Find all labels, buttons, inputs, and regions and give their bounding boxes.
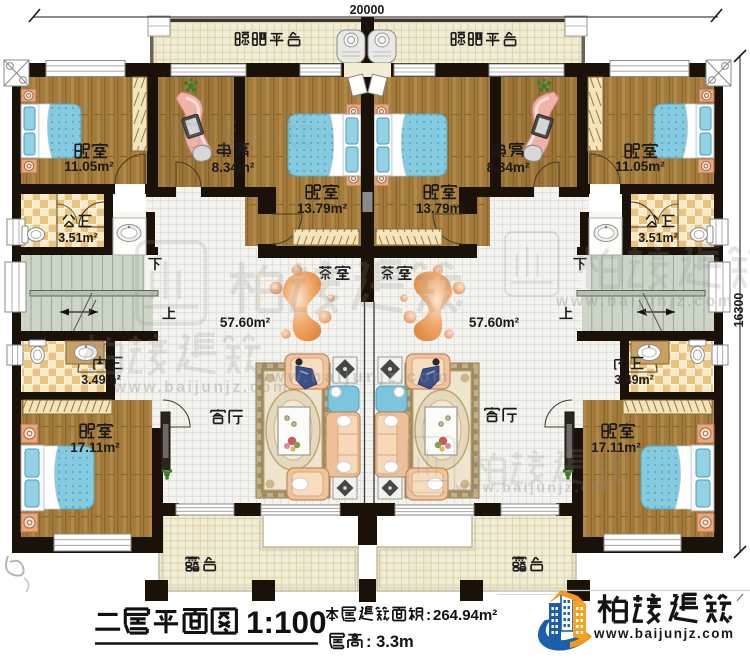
svg-text:www.baijunjz.com: www.baijunjz.com xyxy=(593,626,735,641)
svg-text:20000: 20000 xyxy=(350,3,385,17)
svg-text:: 3.3m: : 3.3m xyxy=(366,633,414,651)
svg-text:57.60m²: 57.60m² xyxy=(220,315,271,330)
svg-text:13.79m²: 13.79m² xyxy=(416,201,467,216)
svg-text:57.60m²: 57.60m² xyxy=(469,315,520,330)
svg-text:3.51m²: 3.51m² xyxy=(638,231,678,245)
svg-text:16300: 16300 xyxy=(732,293,746,328)
svg-text:www.baijunjz.com: www.baijunjz.com xyxy=(455,479,617,495)
svg-text:17.11m²: 17.11m² xyxy=(70,440,120,455)
svg-text:11.05m²: 11.05m² xyxy=(64,159,114,174)
svg-text:8.34m²: 8.34m² xyxy=(487,160,530,175)
svg-text:3.51m²: 3.51m² xyxy=(58,231,98,245)
svg-text:www.baijunjz.com: www.baijunjz.com xyxy=(555,293,734,310)
svg-text:3.49m²: 3.49m² xyxy=(614,373,654,387)
svg-text:264.94m²: 264.94m² xyxy=(433,607,497,624)
svg-text:11.05m²: 11.05m² xyxy=(615,159,665,174)
svg-text:www.baijunjz.com: www.baijunjz.com xyxy=(113,379,289,396)
svg-text:13.79m²: 13.79m² xyxy=(297,201,348,216)
svg-text:8.34m²: 8.34m² xyxy=(212,160,255,175)
svg-text:1:100: 1:100 xyxy=(246,604,327,640)
svg-text::: : xyxy=(426,607,431,624)
